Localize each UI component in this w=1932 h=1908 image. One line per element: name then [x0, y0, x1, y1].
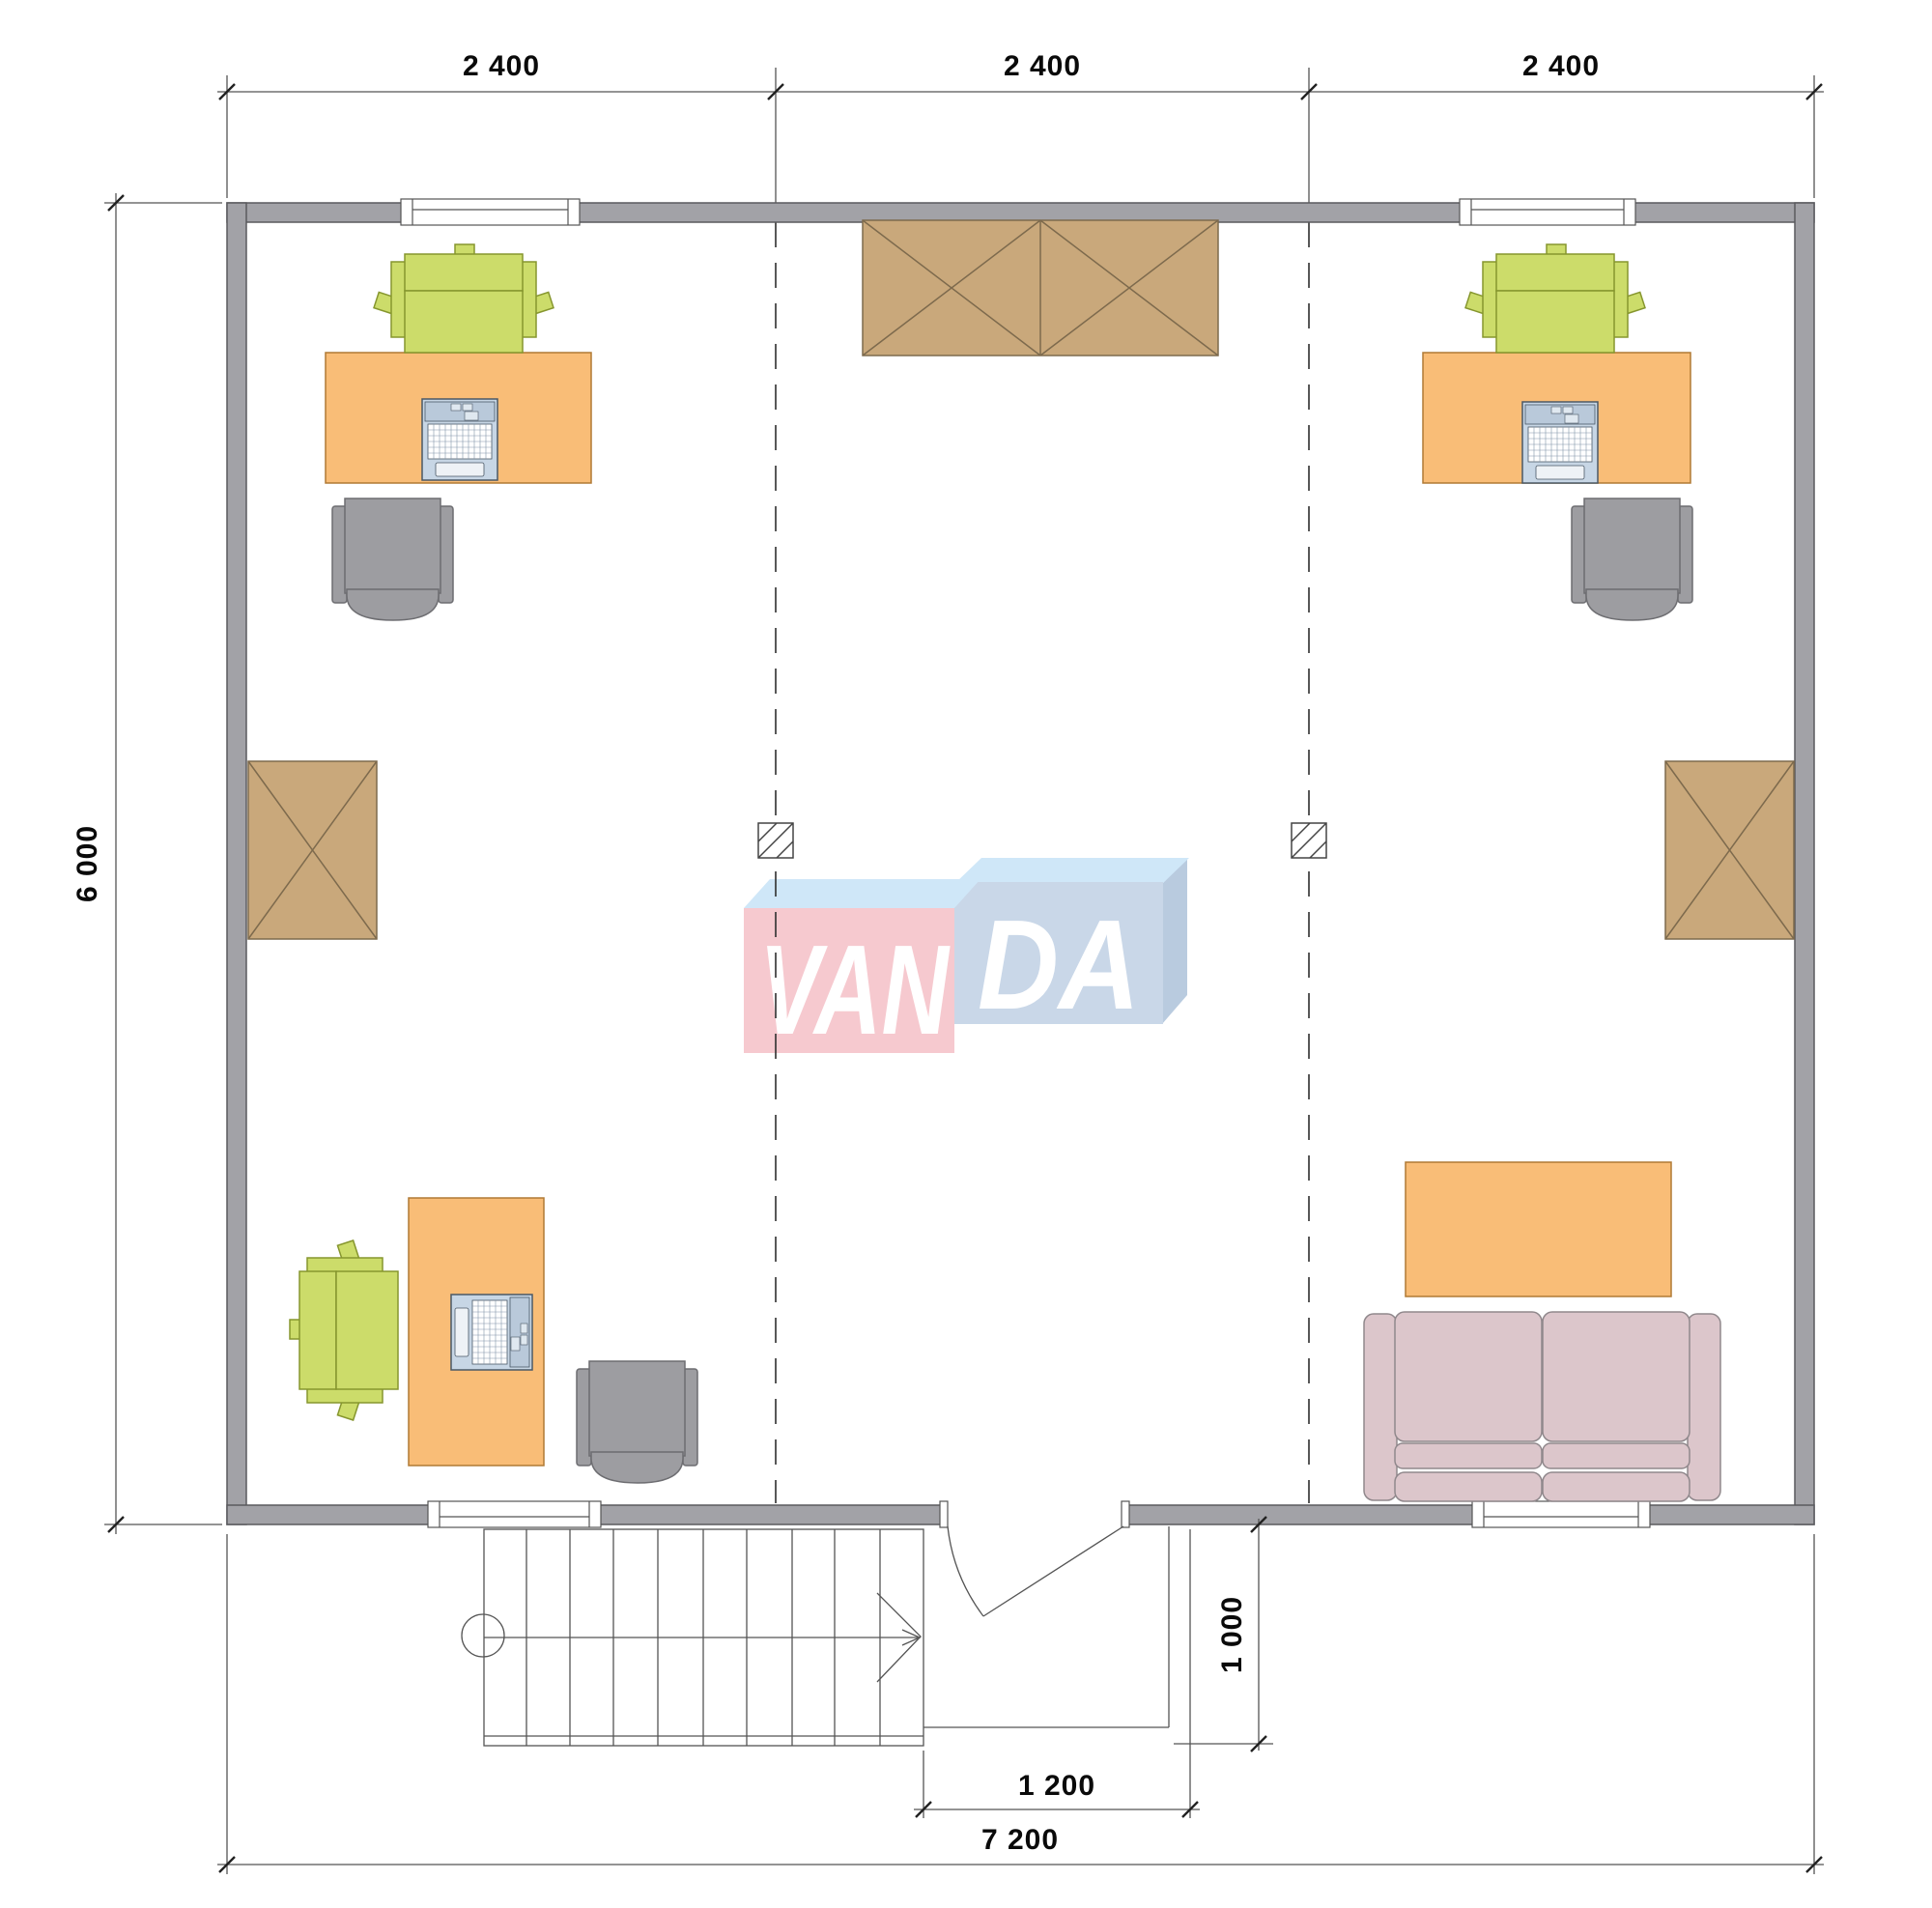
stairs: [462, 1529, 923, 1746]
dim-entry-width: 1 200: [1018, 1770, 1095, 1802]
dim-height: 6 000: [71, 825, 103, 902]
sofa-armrest-left: [1364, 1314, 1397, 1500]
floor-plan-canvas: VAN DA: [0, 0, 1932, 1908]
logo-right-side-face: [1162, 858, 1187, 1024]
door-leaf: [983, 1526, 1123, 1616]
floor-plan-drawing: VAN DA: [0, 0, 1932, 1908]
coffee-table: [1406, 1162, 1671, 1296]
window-bottom-left: [428, 1501, 601, 1527]
wall-left: [227, 203, 246, 1524]
sofa-mid-cushion-left: [1395, 1443, 1542, 1468]
door-jamb-left: [940, 1501, 948, 1527]
dimension-left: 6 000: [71, 193, 222, 1534]
gray-chair-top-right: [1572, 498, 1692, 620]
green-chair-top-left: [374, 244, 554, 353]
window-bottom-right: [1472, 1501, 1650, 1527]
watermark-text-van: VAN: [759, 919, 951, 1061]
dim-bay-2: 2 400: [1004, 50, 1081, 82]
window-top-right: [1460, 199, 1635, 225]
wall-right: [1795, 203, 1814, 1524]
sofa-seat-cushion-left: [1395, 1472, 1542, 1501]
dimension-porch-depth: 1 000: [1174, 1517, 1273, 1751]
dim-bay-1: 2 400: [463, 50, 540, 82]
laptop-top-left: [422, 399, 497, 480]
columns: [758, 823, 1326, 858]
sofa-seat-cushion-right: [1543, 1472, 1690, 1501]
sofa-back-cushion-left: [1395, 1312, 1542, 1441]
watermark-text-da: DA: [978, 894, 1140, 1036]
sofa: [1364, 1312, 1720, 1501]
green-chair-bottom-left: [290, 1240, 398, 1420]
gray-chair-bottom-left: [577, 1361, 697, 1483]
column-symbol-left: [758, 823, 793, 858]
door-swing-arc: [948, 1526, 983, 1616]
laptop-top-right: [1522, 402, 1598, 483]
storage-box-left: [248, 761, 377, 939]
porch-outline: [923, 1526, 1169, 1727]
column-symbol-right: [1292, 823, 1326, 858]
door-jamb-right: [1122, 1501, 1129, 1527]
vanda-watermark-logo: VAN DA: [744, 858, 1189, 1061]
sofa-armrest-right: [1688, 1314, 1720, 1500]
green-chair-top-right: [1465, 244, 1645, 353]
dimension-top: 2 400 2 400 2 400: [217, 50, 1824, 198]
storage-box-right: [1665, 761, 1794, 939]
laptop-bottom-left: [451, 1295, 532, 1370]
sofa-mid-cushion-right: [1543, 1443, 1690, 1468]
entry-door: [940, 1501, 1129, 1616]
window-top-left: [401, 199, 580, 225]
logo-left-top-face: [744, 879, 980, 908]
dimension-entry-width: 1 200: [914, 1529, 1200, 1818]
gray-chair-top-left: [332, 498, 453, 620]
sofa-back-cushion-right: [1543, 1312, 1690, 1441]
dim-bay-3: 2 400: [1522, 50, 1600, 82]
wall-bottom-right: [1128, 1505, 1814, 1524]
wardrobe-top-center: [863, 220, 1218, 356]
dim-total-width: 7 200: [981, 1824, 1059, 1856]
dim-porch-depth: 1 000: [1216, 1596, 1248, 1673]
dimension-total-width: 7 200: [217, 1534, 1824, 1874]
logo-right-top-face: [954, 858, 1189, 884]
stair-start-post: [462, 1614, 504, 1657]
